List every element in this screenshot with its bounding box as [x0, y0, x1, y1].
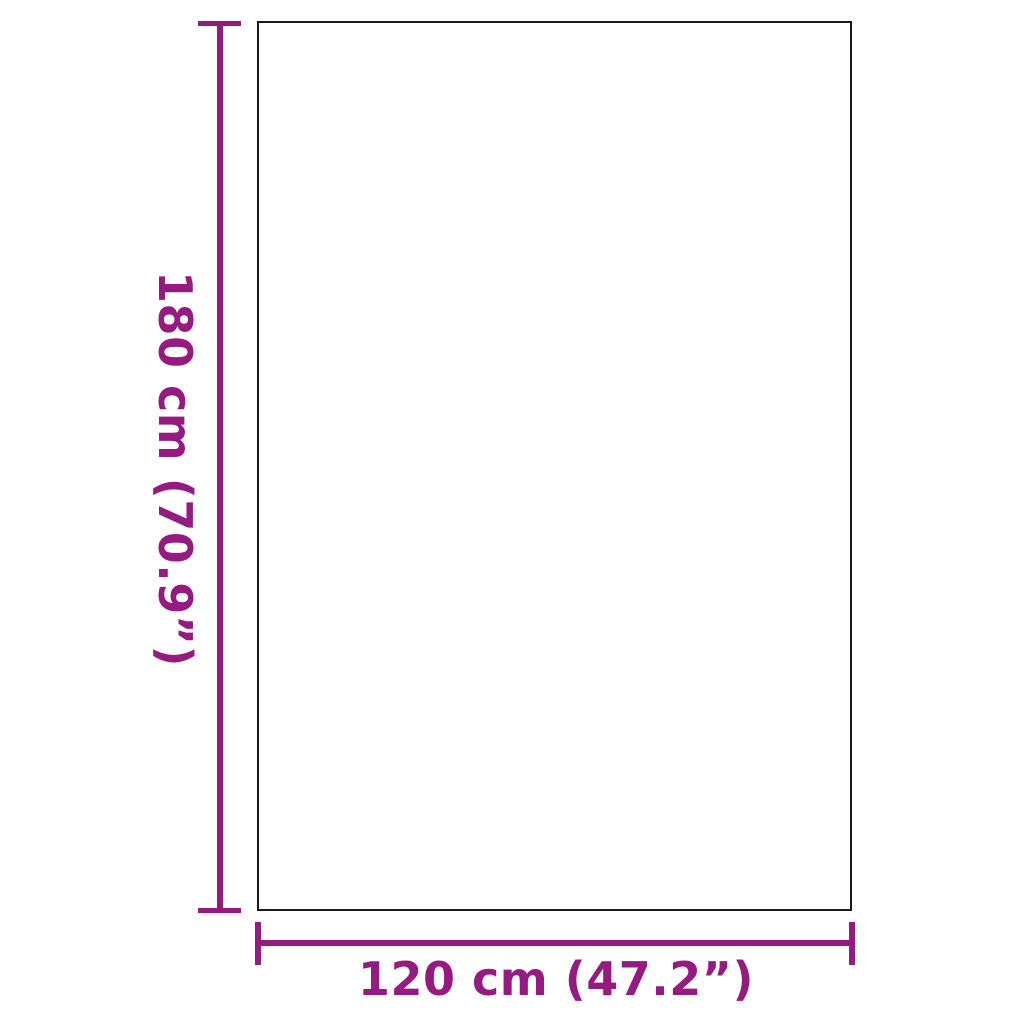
horizontal-dimension-cap-right: [849, 922, 855, 965]
horizontal-dimension-line: [258, 940, 852, 946]
horizontal-dimension-cap-left: [255, 922, 261, 965]
height-dimension-label: 180 cm (70.9”): [152, 271, 198, 667]
vertical-dimension-cap-bottom: [198, 908, 241, 913]
width-dimension-label: 120 cm (47.2”): [358, 956, 754, 1002]
vertical-dimension-line: [217, 23, 223, 911]
vertical-dimension-cap-top: [198, 21, 241, 26]
product-outline-rectangle: [257, 21, 852, 911]
dimension-diagram: 180 cm (70.9”) 120 cm (47.2”): [0, 0, 1024, 1024]
